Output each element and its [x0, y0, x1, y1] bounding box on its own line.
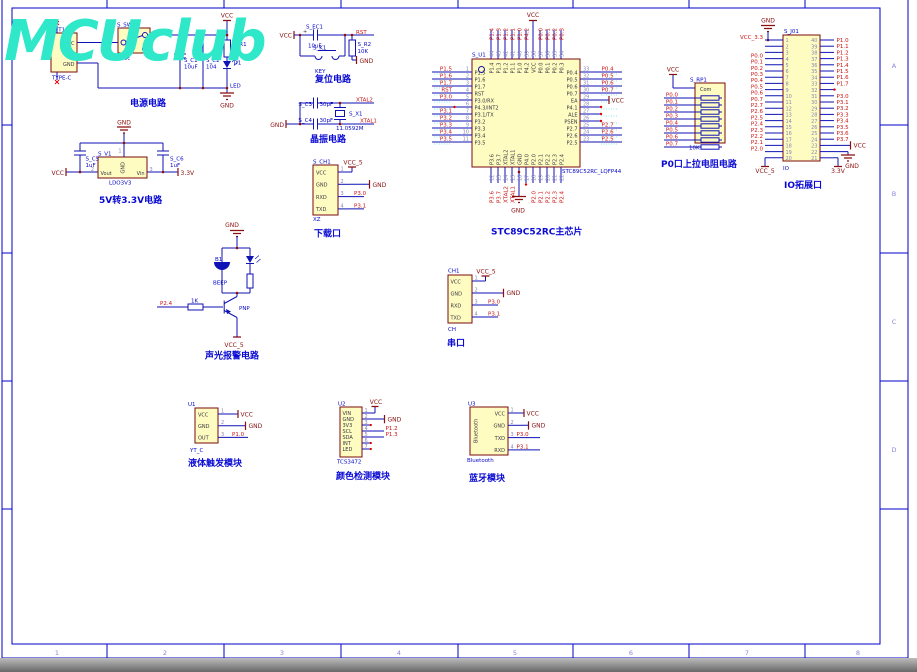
mcu-pin-top[interactable]: 36 P0.1 P0.1 — [545, 28, 551, 74]
pin-number: 24 — [583, 130, 589, 136]
svg-text:3: 3 — [280, 649, 284, 657]
pin-name: Vin — [137, 171, 145, 177]
svg-text:A: A — [892, 62, 897, 70]
power-port-vcc5: VCC_5 — [224, 342, 243, 349]
pin-name: Vout — [101, 171, 112, 177]
pin-number: 32 — [811, 88, 817, 94]
pin-name: RXD — [451, 303, 462, 309]
io-pin-right[interactable]: 32 — [811, 88, 834, 94]
io-pin-right[interactable]: 23 — [811, 144, 834, 150]
io-pin-left[interactable]: 1 VCC_3.3 — [740, 35, 789, 44]
net-label: P3.1 — [837, 100, 849, 106]
part-value: LED — [230, 84, 241, 90]
pin-name: P2.4 — [559, 154, 565, 165]
mcu-pin-top[interactable]: 40 P1.0 P1.0 — [517, 27, 523, 73]
pin-number: 43 — [496, 51, 502, 57]
part-value: 1uF — [170, 163, 180, 169]
net-label: P3.0 — [440, 95, 453, 101]
mcu-pin-bottom[interactable]: 14 XTAL2 XTAL2 — [503, 150, 509, 203]
pin-number: 7 — [365, 444, 368, 450]
pin-name: P1.4 — [489, 63, 495, 74]
part-value: 10uF — [184, 65, 198, 71]
net-label: P3.2 — [837, 106, 849, 112]
net-label: P1.2 — [503, 28, 509, 40]
net-label: P3.2 — [440, 116, 452, 122]
pin-name: Com — [700, 87, 712, 93]
pin-number: 35 — [811, 69, 817, 75]
pin-number: 10 — [463, 130, 469, 136]
pin-name: P3.4 — [475, 133, 486, 139]
pin-number: 44 — [489, 51, 495, 57]
ref-des: S_X1 — [349, 112, 363, 118]
pin-name: P3.3 — [475, 126, 486, 132]
power-port-gnd: GND — [761, 18, 775, 25]
pin-number: 3 — [221, 432, 224, 438]
pin-number: 18 — [531, 175, 537, 181]
svg-text:6: 6 — [629, 649, 633, 657]
power-port-vcc: VCC — [221, 13, 233, 20]
pin-number: 38 — [531, 51, 537, 57]
power-port-vcc: VCC — [527, 12, 539, 19]
power-port-gnd: GND — [249, 423, 263, 430]
net-label: P0.2 — [666, 107, 678, 113]
pin-number: 1 — [511, 408, 514, 414]
pin-name: P1.1 — [510, 63, 516, 74]
pin-number: 21 — [811, 156, 817, 162]
power-port-gnd: GND — [507, 290, 521, 297]
pin-number: 19 — [538, 175, 544, 181]
pin-number: 23 — [811, 144, 817, 150]
pin-number: 17 — [524, 175, 530, 181]
pin-number: 9 — [786, 88, 789, 94]
pin-name: P1.3 — [496, 63, 502, 74]
pin-name: P1.6 — [475, 77, 486, 83]
mcu-pin-bottom[interactable]: 13 P3.7 P3.7 — [496, 154, 502, 203]
power-port-3v3: 3.3V — [181, 170, 196, 177]
ref-des: S_C1 — [184, 58, 198, 64]
pin-number: 41 — [510, 51, 516, 57]
pin-number: 26 — [583, 116, 589, 122]
mcu-pin-top[interactable]: 44 P1.4 P1.4 — [489, 27, 495, 73]
pin-name: P2.7 — [567, 126, 578, 132]
pin-number: 1 — [118, 149, 121, 155]
pin-number: 25 — [811, 131, 817, 137]
pin-number: 1 — [475, 276, 478, 282]
net-label: P0.6 — [666, 135, 679, 141]
pin-number: 33 — [583, 67, 589, 73]
pin-number: 6 — [786, 69, 789, 75]
net-label: P0.3 — [751, 72, 764, 78]
pin-number: 8 — [786, 82, 789, 88]
module-caption: 电源电路 — [130, 97, 167, 109]
pin-name: P3.2 — [475, 119, 486, 125]
pin-number: 13 — [496, 175, 502, 181]
pin-name: VCC — [451, 279, 462, 285]
io-pin-right[interactable]: 22 — [811, 150, 834, 156]
pin-name: P0.6 — [567, 84, 578, 90]
pin-number: 4 — [466, 88, 469, 94]
pin-number: 2 — [221, 420, 224, 426]
net-label: P1.1 — [510, 28, 516, 40]
module-caption: 声光报警电路 — [204, 350, 260, 362]
ref-des: S_EC1 — [306, 25, 323, 31]
pin-number: 22 — [559, 175, 565, 181]
pin-number: 3 — [466, 81, 469, 87]
net-label: P3.6 — [837, 131, 850, 137]
pin-name: GND — [63, 62, 75, 68]
part-value: STC89C52RC_LQFP44 — [562, 169, 622, 175]
pin-number: 31 — [811, 94, 817, 100]
pin-number: 12 — [489, 175, 495, 181]
part-value: CH — [448, 327, 456, 333]
net-label: P2.2 — [545, 191, 551, 203]
ldo-module[interactable]: GND S_V1 LDO3V3 GND Vout Vin 2 3 1 VCC 3… — [52, 120, 196, 207]
pin-name: GND — [517, 153, 523, 165]
mcu-pin-bottom[interactable]: 20 P2.2 P2.2 — [545, 154, 551, 203]
pin-name: VCC — [198, 412, 209, 418]
net-label: P2.6 — [751, 109, 764, 115]
mcu-pin-bottom[interactable]: 19 P2.1 P2.1 — [538, 154, 544, 203]
pin-name: P1.5 — [475, 70, 486, 76]
net-label: P0.1 — [666, 100, 678, 106]
net-label: P0.3 — [666, 114, 679, 120]
pin-number: 16 — [517, 175, 523, 181]
download-port-module[interactable]: S_CH1 XZ 1 VCC 2 GND 3 RXD P3.0 4 TXD P3… — [313, 160, 387, 240]
pin-number: 24 — [811, 137, 817, 143]
pin-number: 35 — [552, 51, 558, 57]
pin-name: P4.3/INT2 — [475, 105, 499, 111]
part-value: 1uF — [86, 163, 96, 169]
pin-number: 4 — [786, 57, 789, 63]
pin-number: 3 — [786, 51, 789, 57]
power-port-gnd: GND — [225, 222, 239, 229]
power-port-gnd: GND — [373, 182, 387, 189]
pin-name: P2.1 — [538, 154, 544, 165]
pin-number: 32 — [583, 74, 589, 80]
ref-des: S_R1 — [233, 42, 247, 48]
net-label: XTAL2 — [356, 98, 373, 104]
part-value: PNP — [239, 306, 250, 312]
pin-name: GND — [494, 424, 506, 430]
pin-number: 1 — [466, 67, 469, 73]
svg-text:C: C — [892, 318, 897, 326]
mcu-pin-bottom[interactable]: 17 P4.0 — [524, 154, 530, 183]
io-pin-left[interactable]: 3 — [765, 51, 789, 57]
pin-number: 2 — [511, 420, 514, 426]
net-label: P2.1 — [538, 191, 544, 203]
pin-name: EA — [571, 98, 578, 104]
pin-number: 2 — [475, 288, 478, 294]
pin-number: 28 — [811, 113, 817, 119]
pin-name: P3.6 — [489, 154, 495, 165]
net-label: P1.2 — [837, 50, 849, 56]
pin-number: 10 — [786, 94, 792, 100]
mcu-pin-top[interactable]: 37 P0.0 P0.0 — [538, 27, 544, 73]
ref-des: S_C6 — [170, 157, 184, 163]
pin-name: P0.3 — [559, 63, 565, 74]
pin-number: 36 — [811, 63, 817, 69]
net-label: P0.3 — [559, 27, 565, 40]
net-label: XTAL2 — [503, 186, 509, 203]
ref-des: S_RP1 — [690, 78, 707, 84]
mcu-pin-bottom[interactable]: 12 P3.6 P3.6 — [489, 154, 495, 203]
svg-text:1: 1 — [55, 649, 59, 657]
net-label: P1.4 — [837, 63, 850, 69]
pin-number: 1 — [786, 38, 789, 44]
bluetooth-module[interactable]: U3 Bluetooth Bluetooth 1 VCC 2 GND 3 TXD… — [467, 402, 546, 485]
pin-name: RXD — [494, 448, 505, 454]
pin-number: 30 — [583, 88, 589, 94]
module-caption: 5V转3.3V电路 — [99, 194, 163, 206]
crystal-module[interactable]: GND S_C3 30pF XTAL2 S_C4 30pF XTAL1 S_X1… — [270, 98, 377, 146]
ref-des: S_SW1 — [117, 23, 136, 29]
pin-name: VCC — [495, 411, 506, 417]
io-pin-left[interactable]: 2 — [765, 44, 789, 50]
power-port-vcc: VCC — [667, 67, 679, 74]
power-port-vcc: VCC — [370, 399, 382, 406]
part-value: 30pF — [320, 102, 334, 108]
pin-number: 19 — [786, 150, 792, 156]
schematic-canvas[interactable]: 1 2 3 4 5 6 7 8 A B C D S_T1 TYPE-C VCC — [0, 0, 917, 672]
svg-text:D: D — [891, 446, 896, 454]
pin-number: 2 — [466, 74, 469, 80]
pin-number: 13 — [786, 113, 792, 119]
power-port-vcc5: VCC_5 — [476, 269, 495, 276]
pin-name: RXD — [316, 195, 327, 201]
pin-number: 29 — [811, 106, 817, 112]
pin-name: P1.2 — [503, 63, 509, 74]
mcu-module[interactable]: S_U1 STC89C52RC_LQFP44 1 P1.5 P1.5 2 P1.… — [432, 12, 624, 238]
ref-des: U2 — [338, 402, 346, 408]
pin-name: OUT — [198, 436, 210, 442]
part-value: BEEP — [213, 281, 228, 287]
net-label: P0.6 — [751, 91, 764, 97]
pin-number: 1 — [341, 167, 344, 173]
pin-name: P0.0 — [538, 63, 544, 74]
pin-name: GND — [121, 162, 127, 174]
alarm-module[interactable]: GND B1 BEEP PNP 1K P2.4 VCC_5 声光报警电路 — [157, 222, 261, 362]
net-label: P1.3 — [496, 27, 502, 40]
pin-name: GND — [316, 183, 328, 189]
window-taskbar-strip — [0, 658, 917, 672]
pin-number: 3 — [511, 432, 514, 438]
pin-number: 42 — [503, 51, 509, 57]
net-label: P2.4 — [160, 301, 173, 307]
net-label: P0.7 — [751, 97, 764, 103]
pin-number: 11 — [463, 137, 469, 143]
power-port-vcc: VCC — [527, 411, 539, 418]
net-label: P1.7 — [440, 81, 453, 87]
power-port-gnd: GND — [532, 423, 546, 430]
net-label: P2.7 — [751, 103, 764, 109]
svg-text:5: 5 — [513, 649, 517, 657]
power-port-vcc5: VCC_5 — [755, 168, 774, 175]
power-port-gnd: GND — [220, 103, 234, 110]
pin-name: P2.6 — [567, 133, 578, 139]
ref-des: D1 — [234, 61, 242, 67]
net-label: P1.0 — [517, 27, 523, 40]
pin-number: 22 — [811, 150, 817, 156]
pin-number: 3 — [150, 167, 153, 173]
net-label: P2.3 — [552, 190, 558, 203]
ref-des: S_V1 — [98, 152, 112, 158]
net-label: P0.1 — [751, 60, 763, 66]
power-port-vcc: VCC — [52, 170, 64, 177]
pin-number: 37 — [811, 57, 817, 63]
pin-name: GND — [451, 291, 463, 297]
pin-number: 40 — [811, 38, 817, 44]
part-value: 10K — [358, 49, 369, 55]
pin-name: RST — [475, 91, 486, 97]
mcu-pin-top[interactable]: 39 P4.2 P4.2 — [524, 28, 530, 74]
net-label: P2.0 — [751, 146, 764, 152]
reset-module[interactable]: VCC + S_EC1 10uF RST S_K1 KEY S_R2 10K G… — [280, 25, 374, 86]
pin-name: P3.1/TX — [475, 112, 495, 118]
net-label: P0.1 — [545, 28, 551, 40]
net-label: P3.1 — [440, 109, 452, 115]
part-value: 30pF — [320, 118, 334, 124]
pin-number: 2 — [341, 179, 344, 185]
power-port-3v3: 3.3V — [831, 168, 846, 175]
mcu-pin-top[interactable]: 43 P1.3 P1.3 — [496, 27, 502, 73]
pin-number: 36 — [545, 51, 551, 57]
pin-name: P4.1 — [567, 105, 578, 111]
net-label: P3.7 — [837, 137, 850, 143]
part-value: TCS3472 — [336, 460, 361, 466]
power-port-vcc: VCC — [280, 32, 292, 39]
pin-number: 15 — [510, 175, 516, 181]
power-port-vcc: VCC — [854, 143, 866, 150]
pin-number: 5 — [786, 63, 789, 69]
pin-number: 23 — [583, 137, 589, 143]
pin-name: VCC — [316, 170, 327, 176]
pin-number: 37 — [538, 51, 544, 57]
module-caption: 晶振电路 — [310, 133, 347, 145]
net-label: P0.2 — [552, 28, 558, 40]
pin-name: P0.4 — [567, 70, 578, 76]
pin-name: P2.3 — [552, 154, 558, 165]
pin-number: 27 — [583, 109, 589, 115]
pin-number: 30 — [811, 100, 817, 106]
ref-des: S_CH1 — [313, 160, 331, 166]
net-label: XTAL1 — [510, 186, 516, 203]
svg-text:7: 7 — [745, 649, 749, 657]
pin-name: P0.5 — [567, 77, 578, 83]
serial-port-module[interactable]: CH1 CH 1 VCC 2 GND 3 RXD P3.0 4 TXD P3.1 — [447, 269, 521, 350]
ref-des: S_U1 — [472, 53, 486, 59]
io-pin-right[interactable]: 24 P3.7 — [811, 137, 849, 143]
pin-number: 4 — [475, 312, 478, 318]
schematic-page: MCUclub 1 2 3 4 5 6 7 8 A B C D — [0, 0, 917, 672]
ref-des: B1 — [215, 257, 222, 263]
pin-name: P3.0/RX — [475, 98, 495, 104]
pullup-module[interactable]: VCC S_RP1 Com 10K P0.0 P0.1 P0.2 P0.3 — [661, 67, 738, 171]
pin-name: PSEN — [564, 119, 577, 125]
pin-number: 3 — [341, 191, 344, 197]
net-label: RST — [441, 88, 452, 94]
pin-number: 4 — [341, 203, 344, 209]
mcu-pin-top[interactable]: 34 P0.3 P0.3 — [559, 27, 565, 73]
svg-text:4: 4 — [397, 649, 401, 657]
module-caption: 复位电路 — [314, 73, 352, 85]
ref-des: S_T1 — [52, 28, 65, 34]
pin-name: P1.0 — [517, 63, 523, 74]
net-label: P2.3 — [751, 128, 764, 134]
io-pin-right[interactable]: 21 — [811, 156, 834, 162]
pin-number: 20 — [786, 156, 792, 162]
pin-name: LED — [343, 447, 353, 453]
pin-number: 15 — [786, 125, 792, 131]
pin-number: 7 — [466, 109, 469, 115]
power-port-gnd: GND — [360, 58, 374, 65]
mcu-pin-bottom[interactable]: 18 P2.0 P2.0 — [531, 154, 537, 203]
ref-des: U3 — [468, 402, 476, 408]
mcu-pin-top[interactable]: 41 P1.1 P1.1 — [510, 28, 516, 74]
pin-number: 5 — [466, 95, 469, 101]
mcu-pin-top[interactable]: 35 P0.2 P0.2 — [552, 28, 558, 74]
module-caption: 蓝牙模块 — [469, 472, 506, 484]
mcu-pin-bottom[interactable]: 22 P2.4 P2.4 — [559, 154, 565, 203]
power-port-vcc: VCC — [241, 412, 253, 419]
net-label: P1.5 — [837, 69, 850, 75]
pin-number: 4 — [511, 444, 514, 450]
ref-des: S_C3 — [298, 102, 312, 108]
pin-number: 39 — [811, 44, 817, 50]
pin-number: 9 — [466, 123, 469, 129]
pin-number: 12 — [786, 106, 792, 112]
net-label: VCC_3.3 — [740, 35, 763, 41]
power-port-gnd: GND — [845, 163, 859, 170]
pin-number: 38 — [811, 51, 817, 57]
color-detect-module[interactable]: U2 TCS3472 1 VIN 2 GND 3 3V3 4 SCL P1.2 … — [336, 399, 402, 482]
ref-des: S_C4 — [298, 118, 312, 124]
io-expansion-module[interactable]: GND S_J01 IO 1 VCC_3.3 2 3 4 P0.0 5 P0.1… — [740, 18, 866, 192]
net-label: P0.4 — [751, 78, 764, 84]
net-label: P2.5 — [751, 115, 764, 121]
power-port-gnd: GND — [117, 120, 131, 127]
pin-name: P2.0 — [531, 154, 537, 165]
net-label: P3.4 — [440, 130, 453, 136]
mcu-pin-top[interactable]: 42 P1.2 P1.2 — [503, 28, 509, 74]
module-caption: P0口上拉电阻电路 — [661, 158, 738, 170]
mcu-pin-bottom[interactable]: 16 GND — [517, 153, 523, 183]
io-top-gnd — [761, 26, 775, 42]
net-label: P0.0 — [538, 27, 544, 40]
power-circuit-module[interactable]: S_T1 TYPE-C VCC GND S_SW1 开关 S_C1 10uF S… — [51, 13, 247, 110]
liquid-trigger-module[interactable]: U1 YT_C 1 VCC 2 GND 3 OUT P1.0 VCC GND 液… — [188, 402, 263, 469]
pin-number: 1 — [221, 409, 224, 415]
part-value: Bluetooth — [467, 458, 494, 464]
ref-des: S_J01 — [784, 29, 799, 35]
mcu-pin-top[interactable]: 38 VCC — [531, 30, 537, 73]
io-pin-left[interactable]: 20 — [765, 156, 792, 162]
pin-number: 3 — [475, 300, 478, 306]
power-port-gnd: GND — [388, 416, 402, 423]
pin-number: 40 — [517, 51, 523, 57]
mcu-pin-bottom[interactable]: 15 XTAL1 XTAL1 — [510, 150, 516, 203]
net-label: P0.7 — [666, 142, 679, 148]
net-label: P3.7 — [496, 190, 502, 203]
mcu-pin-bottom[interactable]: 21 P2.3 P2.3 — [552, 154, 558, 203]
net-label: P1.6 — [837, 75, 850, 81]
zone-letters: A B C D — [891, 62, 896, 454]
net-label: P1.7 — [837, 81, 850, 87]
pin-number: 6 — [466, 102, 469, 108]
net-label: P2.4 — [751, 122, 764, 128]
pin-name: GND — [198, 424, 210, 430]
pin-number: 14 — [786, 119, 792, 125]
io-pin-right[interactable]: 33 P1.7 — [811, 81, 849, 87]
